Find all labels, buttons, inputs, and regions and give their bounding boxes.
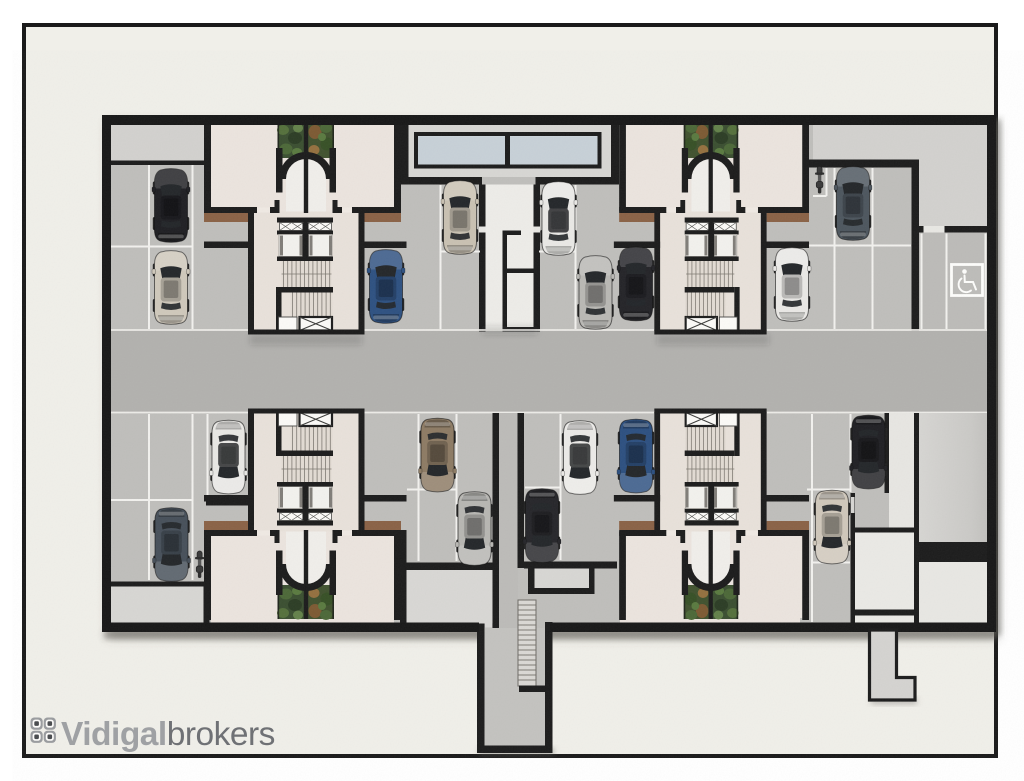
svg-text:Vidigalbrokers: Vidigalbrokers <box>61 716 275 753</box>
